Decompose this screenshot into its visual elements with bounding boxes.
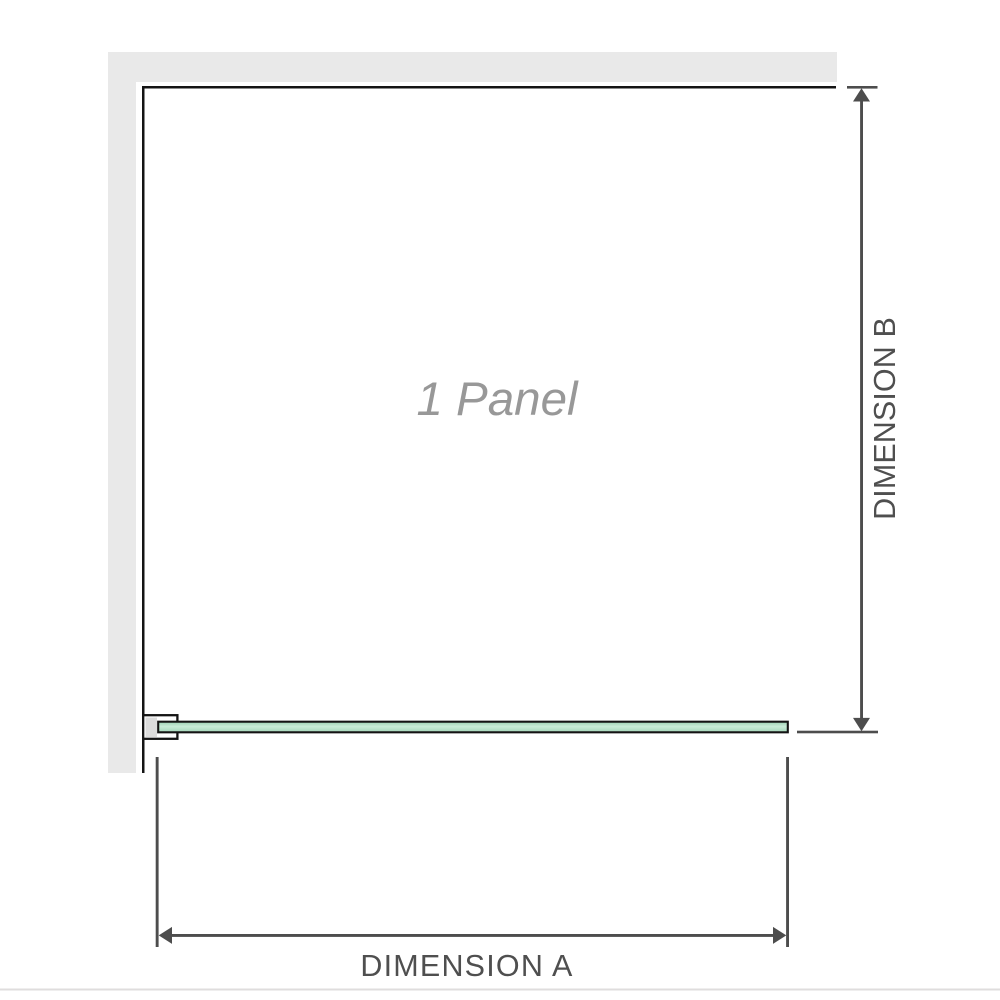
svg-text:DIMENSION A: DIMENSION A: [360, 949, 573, 983]
svg-text:DIMENSION B: DIMENSION B: [868, 317, 902, 520]
svg-text:1 Panel: 1 Panel: [416, 373, 579, 426]
